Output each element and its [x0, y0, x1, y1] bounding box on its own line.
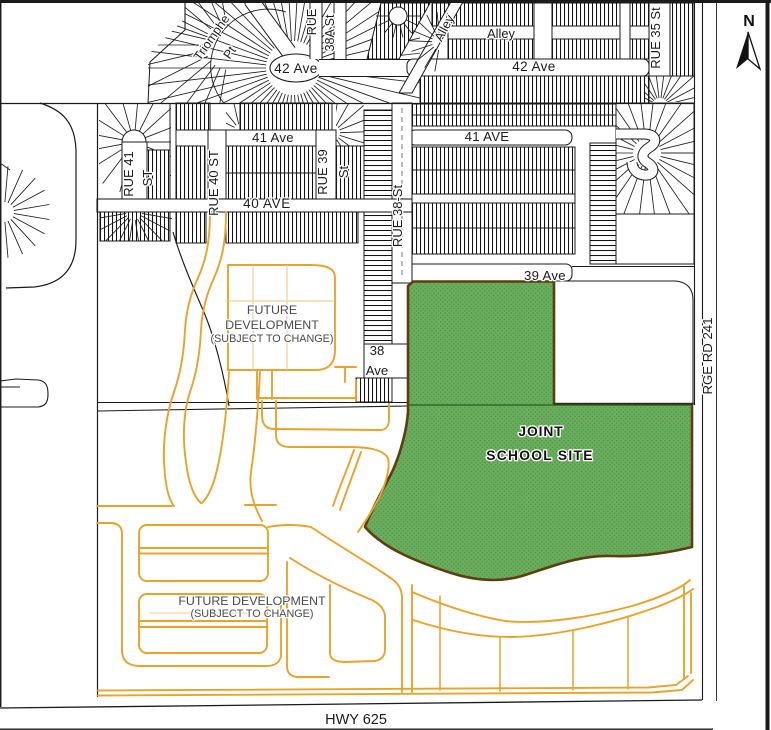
svg-text:RUE 40 ST: RUE 40 ST [206, 150, 221, 216]
svg-text:42 Ave: 42 Ave [274, 61, 317, 76]
svg-text:41 Ave: 41 Ave [252, 130, 294, 145]
svg-text:SCHOOL SITE: SCHOOL SITE [486, 448, 594, 463]
svg-text:JOINT: JOINT [518, 424, 563, 439]
svg-text:RUE 38-St: RUE 38-St [390, 185, 405, 248]
svg-text:38A St: 38A St [323, 14, 337, 51]
svg-text:RUE 41: RUE 41 [121, 151, 136, 197]
svg-text:41 AVE: 41 AVE [465, 129, 510, 144]
svg-text:RUE 35 St: RUE 35 St [648, 7, 663, 69]
svg-text:FUTURE: FUTURE [247, 303, 297, 317]
svg-text:St: St [336, 165, 351, 178]
svg-text:HWY 625: HWY 625 [325, 712, 387, 728]
svg-text:40 AVE: 40 AVE [243, 196, 291, 211]
svg-text:RUE 39: RUE 39 [315, 149, 330, 195]
svg-text:42 Ave: 42 Ave [512, 59, 555, 74]
svg-text:N: N [743, 13, 755, 30]
svg-text:(SUBJECT TO CHANGE): (SUBJECT TO CHANGE) [211, 333, 334, 345]
svg-text:ST: ST [140, 170, 155, 187]
svg-text:Ave: Ave [366, 363, 389, 378]
svg-text:(SUBJECT TO CHANGE): (SUBJECT TO CHANGE) [191, 608, 314, 620]
svg-text:39 Ave: 39 Ave [524, 268, 566, 283]
svg-text:Alley: Alley [487, 26, 515, 41]
svg-text:38: 38 [370, 343, 385, 358]
svg-text:RGE RD 241: RGE RD 241 [700, 318, 715, 395]
svg-text:FUTURE DEVELOPMENT: FUTURE DEVELOPMENT [178, 594, 326, 608]
svg-text:DEVELOPMENT: DEVELOPMENT [225, 318, 319, 332]
svg-text:RUE: RUE [305, 9, 319, 35]
